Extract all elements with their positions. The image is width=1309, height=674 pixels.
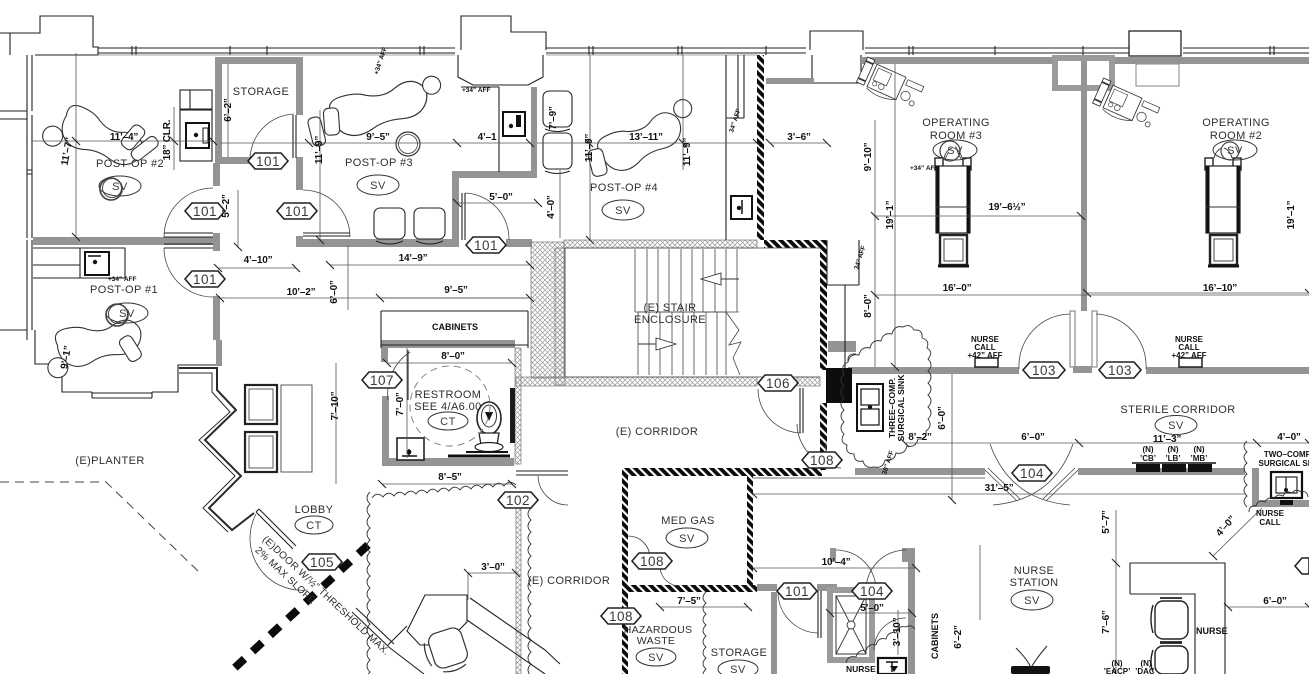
svg-text:+34” AFF: +34” AFF bbox=[462, 87, 491, 94]
svg-text:’MB’: ’MB’ bbox=[1191, 454, 1208, 463]
svg-text:108: 108 bbox=[640, 554, 664, 569]
svg-text:POST-OP #4: POST-OP #4 bbox=[590, 182, 658, 194]
svg-text:9’–5”: 9’–5” bbox=[366, 132, 390, 143]
svg-text:5’–0”: 5’–0” bbox=[489, 192, 513, 203]
svg-text:OPERATING: OPERATING bbox=[1202, 117, 1270, 129]
svg-text:102: 102 bbox=[506, 493, 530, 508]
svg-text:3’–10”: 3’–10” bbox=[892, 617, 903, 646]
svg-text:104: 104 bbox=[860, 584, 884, 599]
svg-text:(E) CORRIDOR: (E) CORRIDOR bbox=[616, 426, 698, 438]
svg-text:(N): (N) bbox=[1142, 445, 1153, 454]
svg-text:11’–3”: 11’–3” bbox=[1153, 434, 1181, 445]
svg-text:11’–9”: 11’–9” bbox=[314, 136, 325, 164]
svg-text:16’–10”: 16’–10” bbox=[1203, 283, 1237, 294]
svg-text:103: 103 bbox=[1032, 363, 1056, 378]
svg-text:19’–1”: 19’–1” bbox=[885, 200, 896, 229]
svg-text:8’–5”: 8’–5” bbox=[438, 472, 462, 483]
svg-text:7’–5”: 7’–5” bbox=[677, 596, 701, 607]
svg-text:101: 101 bbox=[193, 204, 217, 219]
svg-text:9’–10”: 9’–10” bbox=[863, 142, 874, 171]
svg-text:10’–2”: 10’–2” bbox=[287, 287, 316, 298]
svg-text:6’–0”: 6’–0” bbox=[1263, 596, 1287, 607]
svg-text:11’–9”: 11’–9” bbox=[584, 134, 595, 162]
svg-text:9’–5”: 9’–5” bbox=[444, 285, 468, 296]
svg-text:106: 106 bbox=[766, 376, 790, 391]
svg-text:SURGICAL SINK: SURGICAL SINK bbox=[1259, 459, 1309, 468]
svg-text:101: 101 bbox=[256, 154, 280, 169]
svg-text:6’–0”: 6’–0” bbox=[329, 280, 340, 304]
svg-text:NURSE: NURSE bbox=[1014, 565, 1055, 577]
svg-text:4’–0”: 4’–0” bbox=[546, 195, 557, 219]
svg-text:SV: SV bbox=[1168, 420, 1184, 432]
svg-text:104: 104 bbox=[1020, 466, 1044, 481]
svg-text:11’–4”: 11’–4” bbox=[110, 132, 138, 143]
svg-text:CABINETS: CABINETS bbox=[930, 613, 940, 659]
svg-text:6’–0”: 6’–0” bbox=[1021, 432, 1045, 443]
svg-text:3’–6”: 3’–6” bbox=[787, 132, 811, 143]
svg-text:SV: SV bbox=[730, 664, 746, 674]
svg-text:108: 108 bbox=[810, 453, 834, 468]
svg-text:POST-OP #1: POST-OP #1 bbox=[90, 284, 158, 296]
svg-text:8’–0”: 8’–0” bbox=[441, 351, 465, 362]
svg-text:101: 101 bbox=[785, 584, 809, 599]
svg-text:NURSE: NURSE bbox=[846, 664, 876, 674]
svg-text:STORAGE: STORAGE bbox=[233, 86, 289, 98]
svg-text:STERILE CORRIDOR: STERILE CORRIDOR bbox=[1120, 404, 1235, 416]
svg-text:107: 107 bbox=[370, 373, 394, 388]
svg-text:OPERATING: OPERATING bbox=[922, 117, 990, 129]
svg-text:’LB’: ’LB’ bbox=[1165, 454, 1180, 463]
svg-text:101: 101 bbox=[193, 272, 217, 287]
svg-text:POST-OP #3: POST-OP #3 bbox=[345, 157, 413, 169]
svg-text:(E) STAIR: (E) STAIR bbox=[644, 302, 697, 314]
svg-text:STORAGE: STORAGE bbox=[711, 647, 767, 659]
svg-text:4’–1: 4’–1 bbox=[478, 132, 497, 143]
svg-text:(N): (N) bbox=[1167, 445, 1178, 454]
svg-text:+34” AFF: +34” AFF bbox=[910, 165, 939, 172]
svg-text:SURGICAL SINK: SURGICAL SINK bbox=[896, 374, 906, 442]
svg-text:SV: SV bbox=[1024, 595, 1040, 607]
svg-text:7’–6”: 7’–6” bbox=[1101, 610, 1112, 634]
svg-text:CALL: CALL bbox=[1259, 518, 1280, 527]
svg-text:(E)PLANTER: (E)PLANTER bbox=[75, 455, 144, 467]
svg-text:CABINETS: CABINETS bbox=[432, 322, 478, 332]
svg-text:NURSE: NURSE bbox=[1196, 626, 1228, 636]
svg-text:3’–0”: 3’–0” bbox=[481, 562, 505, 573]
svg-text:103: 103 bbox=[1108, 363, 1132, 378]
svg-text:18” CLR.: 18” CLR. bbox=[162, 119, 173, 160]
svg-text:(N): (N) bbox=[1193, 445, 1204, 454]
svg-text:+42” AFF: +42” AFF bbox=[967, 351, 1002, 360]
svg-text:TWO–COMP.: TWO–COMP. bbox=[1264, 450, 1309, 459]
svg-text:7’–0”: 7’–0” bbox=[395, 392, 406, 416]
svg-text:16’–0”: 16’–0” bbox=[943, 283, 972, 294]
svg-text:10’–4”: 10’–4” bbox=[822, 557, 851, 568]
svg-text:’EACP’: ’EACP’ bbox=[1104, 667, 1131, 674]
svg-text:5’–2”: 5’–2” bbox=[221, 194, 232, 218]
svg-text:NURSE: NURSE bbox=[1256, 509, 1285, 518]
svg-text:CT: CT bbox=[440, 416, 456, 428]
svg-text:LOBBY: LOBBY bbox=[295, 504, 334, 516]
svg-text:6’–0”: 6’–0” bbox=[937, 406, 948, 430]
svg-text:+34” AFF: +34” AFF bbox=[108, 276, 137, 283]
svg-text:’CB’: ’CB’ bbox=[1140, 454, 1156, 463]
svg-text:WASTE: WASTE bbox=[637, 635, 675, 647]
svg-text:6’–2”: 6’–2” bbox=[953, 625, 964, 649]
svg-text:’DAC’: ’DAC’ bbox=[1135, 667, 1157, 674]
svg-text:STATION: STATION bbox=[1010, 577, 1059, 589]
svg-text:+42” AFF: +42” AFF bbox=[1171, 351, 1206, 360]
svg-text:8’–0”: 8’–0” bbox=[863, 294, 874, 318]
svg-text:4’–0”: 4’–0” bbox=[1277, 432, 1301, 443]
svg-text:101: 101 bbox=[474, 238, 498, 253]
svg-text:CT: CT bbox=[306, 520, 322, 532]
svg-text:108: 108 bbox=[609, 609, 633, 624]
svg-text:11’–9”: 11’–9” bbox=[682, 138, 693, 166]
svg-text:105: 105 bbox=[310, 555, 334, 570]
svg-text:(E) CORRIDOR: (E) CORRIDOR bbox=[528, 575, 610, 587]
svg-text:31’–5”: 31’–5” bbox=[985, 483, 1014, 494]
svg-text:ENCLOSURE: ENCLOSURE bbox=[634, 314, 706, 326]
svg-text:5’–0”: 5’–0” bbox=[860, 603, 884, 614]
svg-text:POST-OP #2: POST-OP #2 bbox=[96, 158, 164, 170]
svg-text:MED GAS: MED GAS bbox=[661, 515, 715, 527]
svg-text:4’–10”: 4’–10” bbox=[244, 255, 273, 266]
svg-text:19’–6½”: 19’–6½” bbox=[989, 202, 1026, 213]
svg-text:SV: SV bbox=[679, 533, 695, 545]
svg-text:5’–7”: 5’–7” bbox=[1101, 510, 1112, 534]
svg-text:14’–9”: 14’–9” bbox=[399, 253, 428, 264]
svg-text:7’–9”: 7’–9” bbox=[548, 106, 559, 130]
svg-text:SV: SV bbox=[1227, 145, 1243, 157]
svg-text:SEE 4/A6.00: SEE 4/A6.00 bbox=[414, 401, 481, 413]
svg-text:RESTROOM: RESTROOM bbox=[415, 389, 482, 401]
svg-text:SV: SV bbox=[370, 180, 386, 192]
svg-text:SV: SV bbox=[615, 205, 631, 217]
svg-text:6’–2”: 6’–2” bbox=[223, 98, 234, 122]
svg-text:7’–10”: 7’–10” bbox=[330, 391, 341, 420]
svg-text:101: 101 bbox=[285, 204, 309, 219]
svg-text:SV: SV bbox=[648, 652, 664, 664]
svg-text:8’–2”: 8’–2” bbox=[908, 432, 932, 443]
svg-text:13’–11”: 13’–11” bbox=[629, 132, 663, 143]
svg-text:19’–1”: 19’–1” bbox=[1286, 200, 1297, 229]
